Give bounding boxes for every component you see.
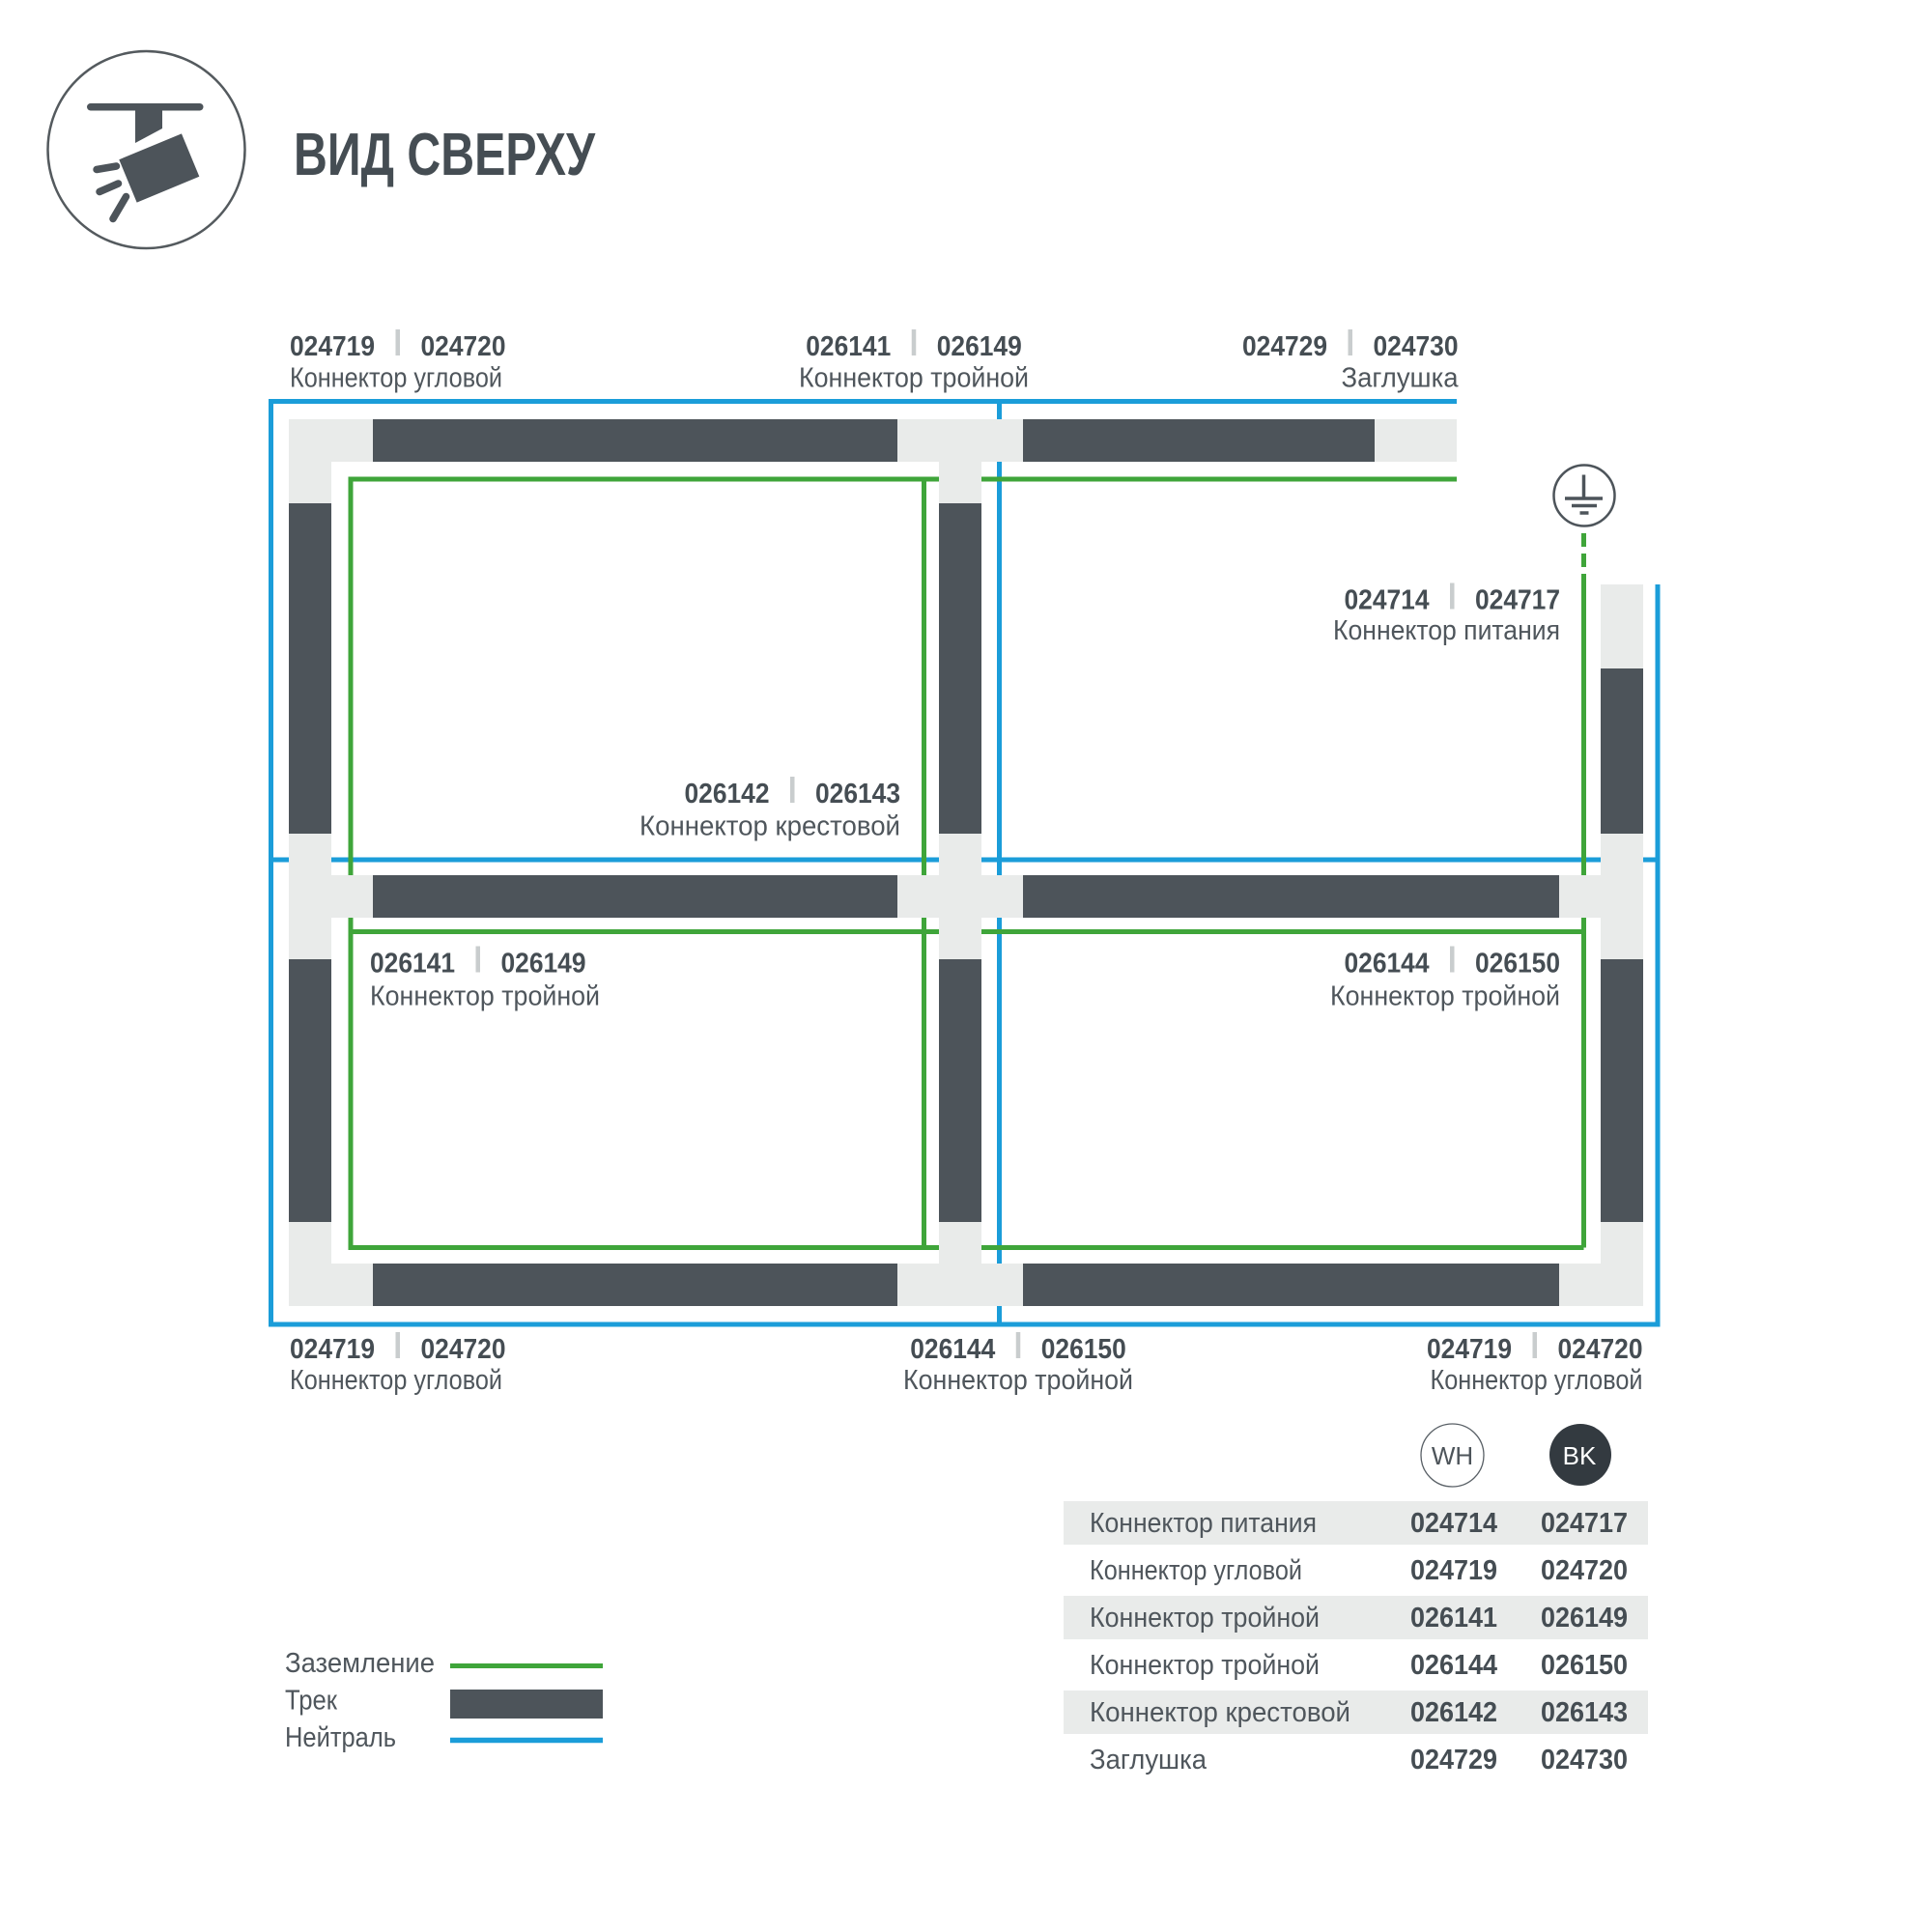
svg-text:Коннектор тройной: Коннектор тройной [903,1365,1133,1396]
svg-text:Коннектор тройной: Коннектор тройной [799,363,1029,394]
svg-text:024719: 024719 [290,1334,375,1365]
svg-text:026149: 026149 [501,949,586,980]
svg-text:026150: 026150 [1475,949,1560,980]
svg-text:Коннектор крестовой: Коннектор крестовой [1090,1697,1350,1728]
svg-text:Коннектор тройной: Коннектор тройной [1090,1603,1320,1634]
svg-text:026142: 026142 [1410,1697,1497,1728]
svg-text:Коннектор питания: Коннектор питания [1333,615,1560,646]
svg-text:024714: 024714 [1345,585,1430,616]
svg-text:Заземление: Заземление [285,1648,435,1679]
svg-text:Коннектор тройной: Коннектор тройной [1330,981,1560,1012]
svg-text:026150: 026150 [1041,1334,1126,1365]
svg-text:Трек: Трек [285,1686,337,1717]
svg-text:ВИД СВЕРХУ: ВИД СВЕРХУ [294,122,596,188]
svg-text:024729: 024729 [1242,331,1327,362]
svg-text:Коннектор крестовой: Коннектор крестовой [639,811,900,842]
svg-text:026141: 026141 [1410,1603,1497,1634]
svg-text:024720: 024720 [1558,1334,1643,1365]
svg-text:024730: 024730 [1374,331,1459,362]
svg-text:Коннектор питания: Коннектор питания [1090,1508,1317,1539]
svg-text:WH: WH [1432,1441,1473,1470]
svg-text:024720: 024720 [421,331,506,362]
svg-text:024719: 024719 [1427,1334,1512,1365]
svg-text:026141: 026141 [370,949,455,980]
svg-text:BK: BK [1563,1441,1597,1470]
svg-text:024720: 024720 [421,1334,506,1365]
svg-text:024719: 024719 [290,331,375,362]
svg-text:Нейтраль: Нейтраль [285,1722,396,1753]
svg-text:026144: 026144 [1410,1650,1497,1681]
svg-text:026143: 026143 [1541,1697,1628,1728]
svg-text:Коннектор тройной: Коннектор тройной [370,981,600,1012]
svg-text:Коннектор тройной: Коннектор тройной [1090,1650,1320,1681]
svg-text:026144: 026144 [1345,949,1430,980]
svg-text:026143: 026143 [815,779,900,810]
svg-text:024720: 024720 [1541,1555,1628,1586]
svg-text:024717: 024717 [1475,585,1560,616]
svg-text:026142: 026142 [685,779,770,810]
svg-text:024719: 024719 [1410,1555,1497,1586]
svg-text:026144: 026144 [910,1334,995,1365]
svg-text:024714: 024714 [1410,1508,1497,1539]
svg-text:Коннектор угловой: Коннектор угловой [290,363,502,394]
svg-text:Заглушка: Заглушка [1342,363,1460,394]
svg-text:026149: 026149 [1541,1603,1628,1634]
svg-text:Коннектор угловой: Коннектор угловой [1090,1555,1302,1586]
svg-text:Коннектор угловой: Коннектор угловой [290,1365,502,1396]
svg-text:024729: 024729 [1410,1745,1497,1776]
svg-text:Коннектор угловой: Коннектор угловой [1431,1365,1643,1396]
svg-text:026149: 026149 [937,331,1022,362]
svg-text:026141: 026141 [806,331,891,362]
svg-text:024717: 024717 [1541,1508,1628,1539]
svg-text:026150: 026150 [1541,1650,1628,1681]
svg-text:024730: 024730 [1541,1745,1628,1776]
svg-text:Заглушка: Заглушка [1090,1745,1207,1776]
